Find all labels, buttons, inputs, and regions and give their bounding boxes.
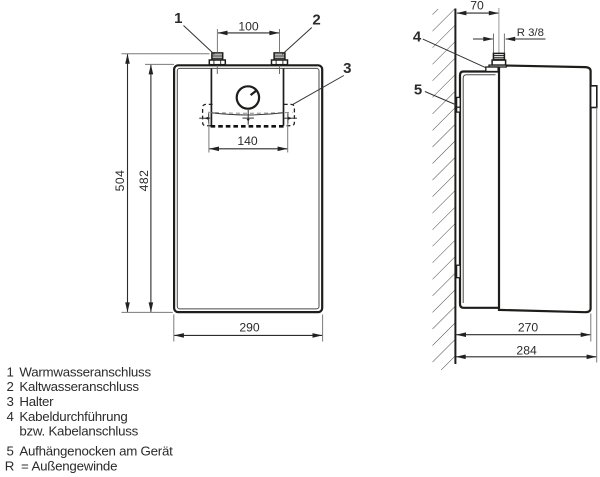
svg-text:Kaltwasseranschluss: Kaltwasseranschluss	[19, 379, 139, 394]
svg-text:1: 1	[174, 10, 182, 27]
svg-text:5: 5	[7, 444, 14, 459]
svg-text:Außengewinde: Außengewinde	[32, 458, 118, 473]
svg-text:Halter: Halter	[19, 394, 54, 409]
svg-text:270: 270	[518, 321, 539, 335]
svg-text:4: 4	[7, 409, 14, 424]
svg-text:4: 4	[413, 28, 422, 45]
svg-text:bzw. Kabelanschluss: bzw. Kabelanschluss	[19, 424, 138, 439]
svg-text:482: 482	[137, 170, 151, 192]
svg-text:Kabeldurchführung: Kabeldurchführung	[19, 409, 127, 424]
svg-text:R: R	[5, 458, 14, 473]
svg-text:Aufhängenocken am Gerät: Aufhängenocken am Gerät	[19, 444, 173, 459]
svg-text:2: 2	[312, 11, 320, 28]
svg-text:504: 504	[113, 170, 127, 192]
svg-text:Warmwasseranschluss: Warmwasseranschluss	[19, 364, 151, 379]
svg-text:70: 70	[470, 0, 484, 12]
svg-text:1: 1	[7, 364, 14, 379]
svg-text:=: =	[21, 458, 29, 473]
svg-text:5: 5	[414, 81, 422, 98]
svg-text:3: 3	[343, 60, 351, 77]
svg-text:2: 2	[7, 379, 14, 394]
svg-text:140: 140	[237, 134, 258, 148]
svg-text:R 3/8: R 3/8	[517, 27, 544, 39]
svg-text:290: 290	[239, 321, 260, 335]
svg-text:284: 284	[516, 343, 537, 357]
svg-text:3: 3	[7, 394, 14, 409]
svg-text:100: 100	[238, 20, 259, 34]
